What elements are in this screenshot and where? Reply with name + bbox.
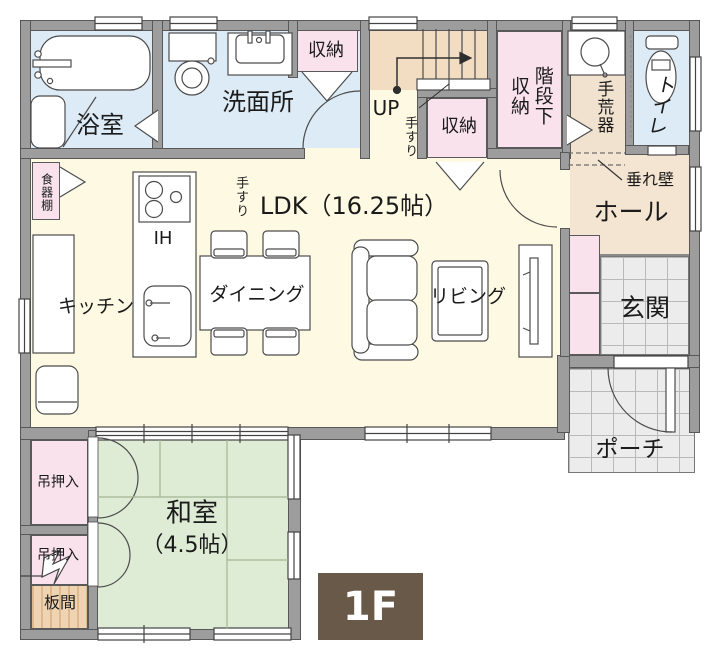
tv-board [519,245,552,357]
refrigerator [36,366,78,414]
window [572,17,617,30]
door-chevron [135,110,158,142]
window [288,435,300,499]
bathtub [33,36,150,90]
label-closet-lower: 吊押入 [37,548,79,563]
window [365,424,491,443]
label-living: リビング [430,287,506,308]
dining-chair [211,231,247,258]
sliding-door-opening [96,424,288,443]
floor-badge: 1F [318,573,423,640]
door-arc [303,91,360,148]
label-handrail-stairs: 手すり [402,112,416,162]
kitchen-counter [33,235,74,353]
label-handrail-ldk: 手すり [233,173,247,221]
label-ldk: LDK（16.25帖） [260,193,448,219]
label-ih: IH [154,229,173,249]
stairs [417,29,490,90]
window [690,167,701,231]
label-dining: ダイニング [209,285,304,306]
label-understair-storage: 階段下収納 [506,64,554,128]
window [95,17,142,30]
door-chevron [436,162,484,190]
label-kitchen: キッチン [58,297,134,318]
dining-chair [211,328,247,355]
kitchen-island [133,172,196,357]
label-hall: ホール [593,198,668,226]
door-chevron [60,167,85,197]
window [369,17,417,30]
label-washroom: 洗面所 [222,89,294,115]
label-japanese-room-size: （4.5帖） [142,534,243,558]
label-closet-upper: 吊押入 [37,475,79,490]
window [170,17,217,30]
label-entrance: 玄関 [620,294,670,322]
floor-plan-1f: 浴室 洗面所 収納 収納 階段下収納 手荒器 トイレ 垂れ壁 ホール 玄関 ポー… [0,0,723,661]
door-chevron [302,72,352,101]
entrance-door [608,368,675,432]
door-chevron [567,115,592,145]
window [19,299,30,353]
label-hanging-wall: 垂れ壁 [626,171,674,189]
label-bathroom: 浴室 [76,112,124,138]
label-storage-mid: 収納 [441,117,477,137]
label-porch: ポーチ [596,437,665,462]
window [690,57,701,131]
label-japanese-room: 和室 [166,500,218,529]
dining-chair [263,328,299,355]
sofa [352,240,418,360]
washing-machine [169,33,216,95]
window [288,532,300,579]
washroom-sink [228,31,292,75]
window [214,628,291,640]
entrance-door-opening [614,356,688,368]
label-up: UP [373,97,400,119]
door-arc [500,170,557,227]
label-storage-top: 収納 [308,41,344,61]
hanging-wall-mark [568,153,625,180]
label-handwash: 手荒器 [594,77,613,137]
fixtures-layer [0,0,723,661]
window [98,625,190,643]
dining-chair [263,231,299,258]
handwash-basin [568,31,625,77]
closet-doors [88,437,138,587]
label-cupboard: 食器棚 [39,165,52,219]
label-wood-floor: 板間 [44,594,76,612]
